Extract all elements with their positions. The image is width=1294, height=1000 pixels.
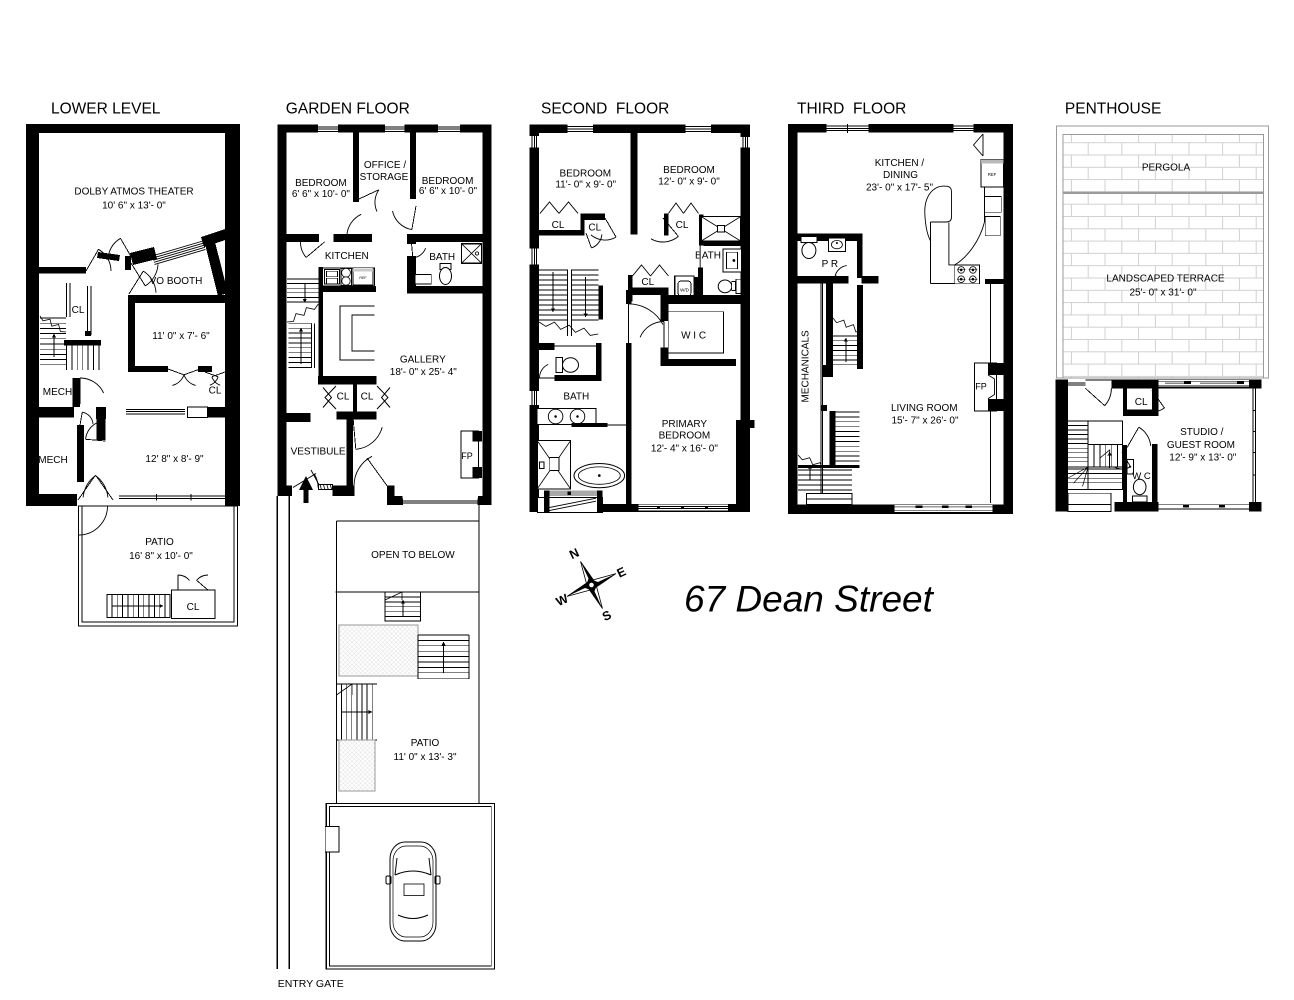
svg-text:VESTIBULE: VESTIBULE: [291, 447, 346, 458]
svg-text:SECOND FLOOR: SECOND FLOOR: [541, 101, 669, 118]
svg-text:MECH: MECH: [43, 387, 72, 398]
svg-text:15'- 7" x 26'- 0": 15'- 7" x 26'- 0": [891, 416, 959, 427]
svg-text:OFFICE /: OFFICE /: [364, 160, 406, 171]
svg-text:CL: CL: [641, 277, 654, 288]
svg-text:BEDROOM: BEDROOM: [295, 178, 347, 189]
svg-text:BEDROOM: BEDROOM: [559, 169, 611, 180]
svg-text:DOLBY ATMOS THEATER: DOLBY ATMOS THEATER: [74, 187, 193, 198]
svg-text:12'- 9" x 13'- 0": 12'- 9" x 13'- 0": [1169, 453, 1237, 464]
svg-text:W/D: W/D: [680, 288, 689, 293]
svg-text:REF: REF: [359, 276, 367, 280]
svg-text:12' 8" x 8'- 9": 12' 8" x 8'- 9": [145, 454, 204, 465]
svg-text:CL: CL: [209, 386, 222, 397]
svg-text:KITCHEN /: KITCHEN /: [875, 158, 925, 169]
svg-text:CL: CL: [552, 220, 565, 231]
svg-text:PERGOLA: PERGOLA: [1142, 163, 1191, 174]
svg-text:GARDEN FLOOR: GARDEN FLOOR: [286, 101, 410, 118]
svg-text:STUDIO /: STUDIO /: [1180, 427, 1224, 438]
svg-text:BEDROOM: BEDROOM: [659, 431, 711, 442]
svg-text:PATIO: PATIO: [411, 738, 440, 749]
svg-text:VO BOOTH: VO BOOTH: [150, 276, 203, 287]
svg-text:PENTHOUSE: PENTHOUSE: [1065, 101, 1161, 118]
svg-text:W C: W C: [1132, 471, 1151, 482]
svg-text:BEDROOM: BEDROOM: [663, 165, 715, 176]
svg-text:16' 8" x 10'- 0": 16' 8" x 10'- 0": [129, 551, 193, 562]
svg-text:FP: FP: [461, 451, 473, 461]
svg-text:PATIO: PATIO: [145, 537, 174, 548]
svg-text:6' 6" x 10'- 0": 6' 6" x 10'- 0": [292, 189, 351, 200]
svg-text:CL: CL: [676, 220, 689, 231]
svg-text:10' 6" x 13'- 0": 10' 6" x 13'- 0": [102, 201, 166, 212]
svg-text:11'- 0" x 9'- 0": 11'- 0" x 9'- 0": [555, 180, 616, 191]
svg-text:6' 6" x 10'- 0": 6' 6" x 10'- 0": [419, 186, 478, 197]
svg-text:PRIMARY: PRIMARY: [662, 419, 708, 430]
svg-text:REF: REF: [988, 172, 997, 177]
svg-text:67 Dean Street: 67 Dean Street: [684, 579, 935, 620]
svg-text:BATH: BATH: [695, 251, 721, 262]
svg-text:23'- 0" x 17'- 5": 23'- 0" x 17'- 5": [866, 183, 934, 194]
svg-text:25'- 0" x 31'- 0": 25'- 0" x 31'- 0": [1129, 288, 1197, 299]
svg-text:CL: CL: [588, 223, 601, 234]
svg-text:OPEN TO BELOW: OPEN TO BELOW: [371, 550, 455, 561]
svg-text:DINING: DINING: [883, 170, 918, 181]
svg-text:LANDSCAPED TERRACE: LANDSCAPED TERRACE: [1106, 274, 1225, 285]
svg-text:11' 0" x 13'- 3": 11' 0" x 13'- 3": [394, 752, 457, 763]
svg-text:THIRD FLOOR: THIRD FLOOR: [797, 101, 906, 118]
svg-text:P R: P R: [822, 259, 839, 270]
svg-text:BATH: BATH: [563, 392, 589, 403]
svg-text:LOWER LEVEL: LOWER LEVEL: [51, 101, 161, 118]
svg-text:GUEST ROOM: GUEST ROOM: [1167, 440, 1235, 451]
svg-text:ENTRY GATE: ENTRY GATE: [278, 978, 344, 990]
svg-text:MECH: MECH: [38, 455, 67, 466]
svg-text:CL: CL: [1135, 397, 1148, 408]
svg-text:FP: FP: [975, 382, 987, 392]
svg-text:18'- 0" x 25'- 4": 18'- 0" x 25'- 4": [390, 367, 458, 378]
svg-text:GALLERY: GALLERY: [400, 355, 446, 366]
svg-text:12'- 0" x 9'- 0": 12'- 0" x 9'- 0": [658, 177, 720, 188]
svg-text:12'- 4" x 16'- 0": 12'- 4" x 16'- 0": [651, 444, 719, 455]
svg-text:W I C: W I C: [681, 331, 706, 342]
svg-text:LIVING ROOM: LIVING ROOM: [891, 403, 958, 414]
svg-text:KITCHEN: KITCHEN: [325, 251, 369, 262]
svg-text:STORAGE: STORAGE: [360, 172, 409, 183]
svg-text:CL: CL: [337, 392, 350, 403]
svg-text:CL: CL: [361, 392, 374, 403]
svg-text:CL: CL: [72, 305, 85, 316]
svg-text:CL: CL: [187, 602, 200, 613]
svg-text:MECHANICALS: MECHANICALS: [800, 330, 811, 403]
svg-text:11' 0" x 7'- 6": 11' 0" x 7'- 6": [152, 331, 210, 342]
svg-text:BATH: BATH: [429, 252, 455, 263]
